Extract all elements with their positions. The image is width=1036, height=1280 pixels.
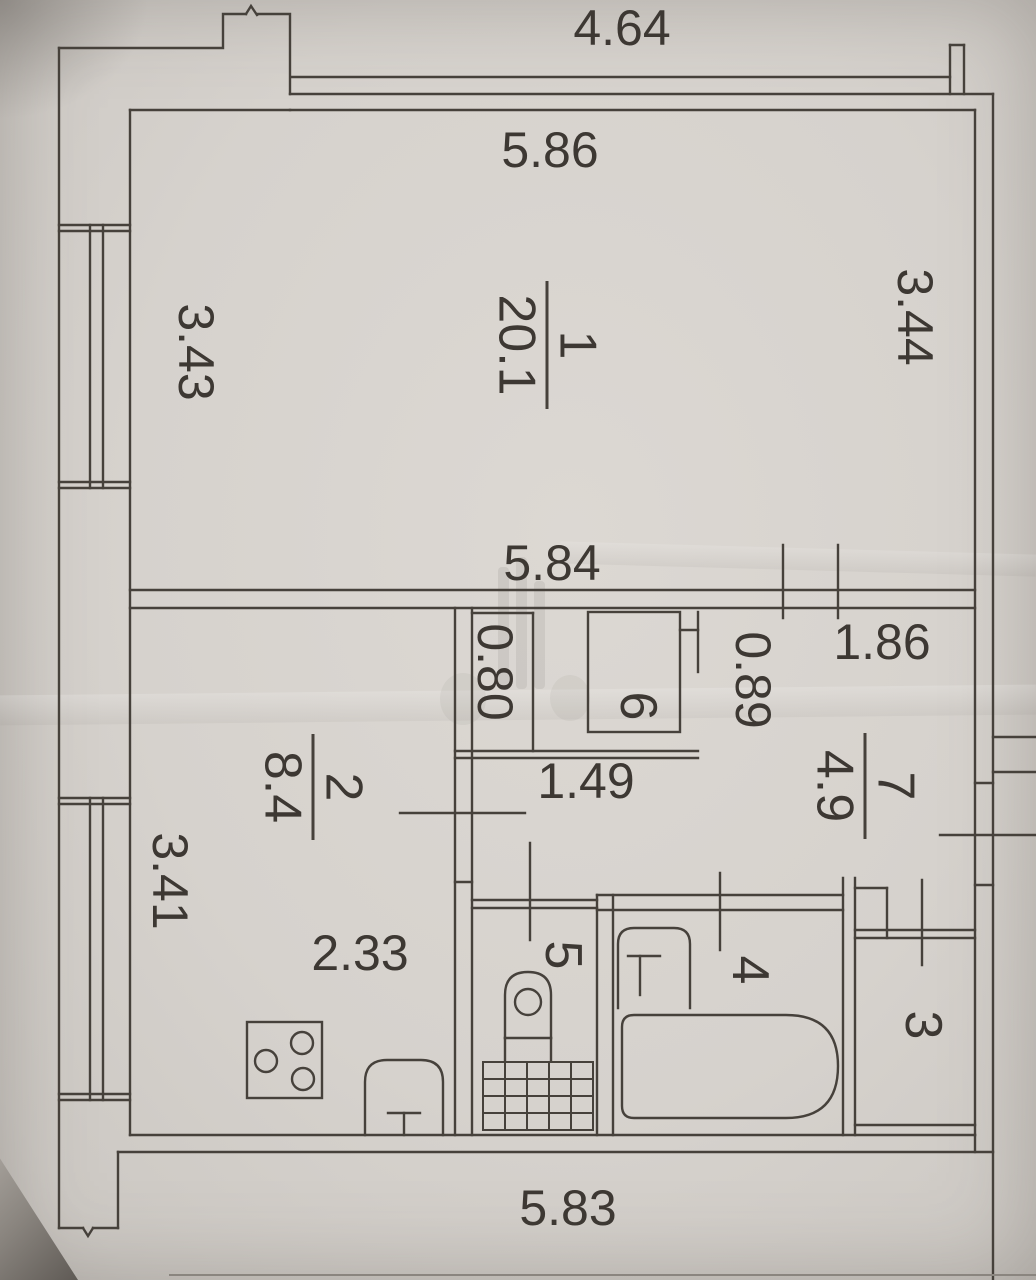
bathtub-icon xyxy=(622,1015,838,1118)
dim-room1-depth-left: 3.43 xyxy=(171,303,221,400)
room-1-label: 1 20.1 xyxy=(491,281,604,409)
dim-closet-width: 0.80 xyxy=(470,623,520,720)
room-7-fraction-bar xyxy=(864,733,867,839)
shower-tray-icon xyxy=(483,1062,593,1130)
kitchen-sink-icon xyxy=(365,1060,443,1135)
dim-kitchen-width: 2.33 xyxy=(311,928,408,978)
dim-corridor-length: 1.49 xyxy=(537,756,634,806)
room-5-number: 5 xyxy=(537,941,589,970)
vestibule-room3 xyxy=(855,880,975,1125)
room-7-area: 4.9 xyxy=(809,750,861,822)
sink-icon xyxy=(618,928,690,1008)
toilet-icon xyxy=(505,972,551,1060)
window-kitchen xyxy=(59,798,130,1100)
room-4-number: 4 xyxy=(724,956,776,985)
dim-bottom-width: 5.83 xyxy=(519,1183,616,1233)
dim-room1-depth-right: 3.44 xyxy=(890,268,940,365)
room-1-area: 20.1 xyxy=(491,294,543,395)
dim-top-offset: 4.64 xyxy=(573,3,670,53)
room-7-label: 7 4.9 xyxy=(809,733,922,839)
window-room1 xyxy=(59,225,130,488)
dim-kitchen-depth-left: 3.41 xyxy=(145,832,195,929)
room-6-number: 6 xyxy=(612,692,664,721)
room-1-fraction-bar xyxy=(546,281,549,409)
right-wall-features xyxy=(940,737,1036,885)
room-1-number: 1 xyxy=(552,331,604,360)
room-3-number: 3 xyxy=(897,1011,949,1040)
room-2-area: 8.4 xyxy=(257,751,309,823)
dim-room1-width-bottom: 5.84 xyxy=(503,538,600,588)
room-2-label: 2 8.4 xyxy=(257,734,370,840)
bathroom-room4 xyxy=(597,873,855,1135)
room-2-fraction-bar xyxy=(312,734,315,840)
dim-closet-depth: 0.89 xyxy=(728,631,778,728)
dim-room1-width-top: 5.86 xyxy=(501,125,598,175)
room-2-number: 2 xyxy=(318,773,370,802)
stove-icon xyxy=(247,1022,322,1098)
room-7-number: 7 xyxy=(870,772,922,801)
dim-hall-width: 1.86 xyxy=(833,617,930,667)
floor-plan-scan: 4.64 5.86 3.43 3.44 5.84 0.80 0.89 1.86 … xyxy=(0,0,1036,1280)
wc-room5 xyxy=(472,843,613,1135)
